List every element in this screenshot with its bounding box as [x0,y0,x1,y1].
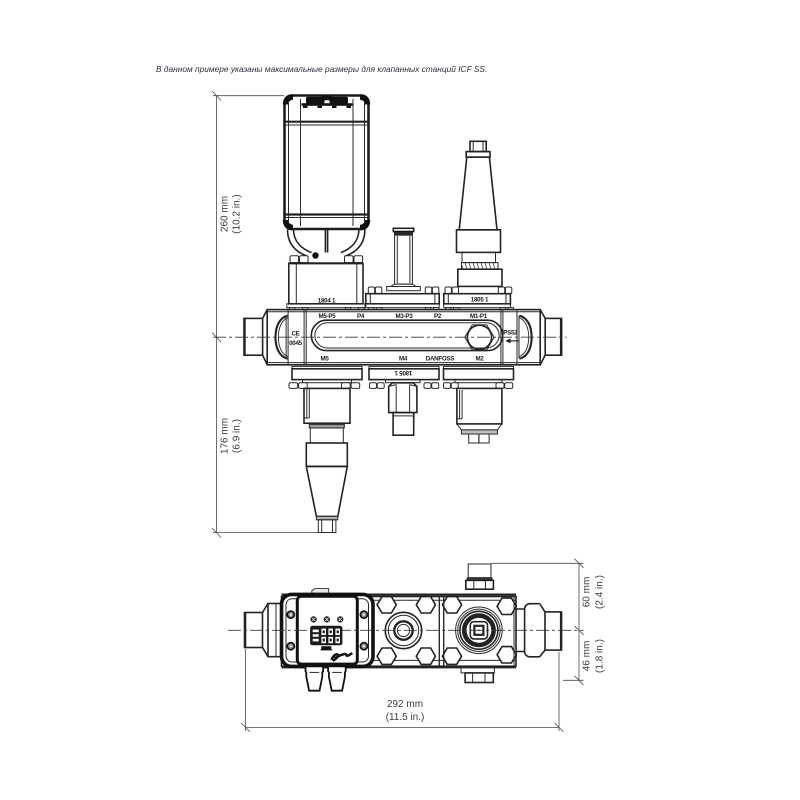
svg-text:1805 1: 1805 1 [471,296,489,303]
svg-text:0045: 0045 [289,340,303,347]
svg-text:(2.4 in.): (2.4 in.) [595,575,606,609]
svg-text:(10.2 in.): (10.2 in.) [232,194,243,233]
svg-text:(11.5 in.): (11.5 in.) [386,712,425,723]
svg-text:176 mm: 176 mm [220,418,231,454]
svg-text:M3-P3: M3-P3 [396,313,414,320]
svg-text:M5: M5 [320,355,329,362]
svg-text:292 mm: 292 mm [387,699,423,710]
svg-text:В данном примере указаны макси: В данном примере указаны максимальные ра… [156,64,487,74]
svg-text:CE: CE [291,331,299,338]
svg-text:P2: P2 [434,313,442,320]
svg-text:M2: M2 [475,355,484,362]
svg-text:60 mm: 60 mm [582,577,593,608]
svg-text:260 mm: 260 mm [220,196,231,232]
svg-text:DANFOSS: DANFOSS [426,355,455,362]
svg-text:M1-P1: M1-P1 [470,313,488,320]
svg-text:(1.8 in.): (1.8 in.) [595,639,606,673]
svg-text:P4: P4 [357,313,365,320]
svg-text:1804 1: 1804 1 [318,297,336,304]
svg-text:46 mm: 46 mm [582,641,593,672]
svg-text:1805 1: 1805 1 [394,369,412,376]
svg-text:(6.9 in.): (6.9 in.) [232,419,243,453]
svg-text:M5-P5: M5-P5 [319,313,337,320]
svg-text:PS52: PS52 [503,330,518,337]
svg-text:M4: M4 [399,355,408,362]
